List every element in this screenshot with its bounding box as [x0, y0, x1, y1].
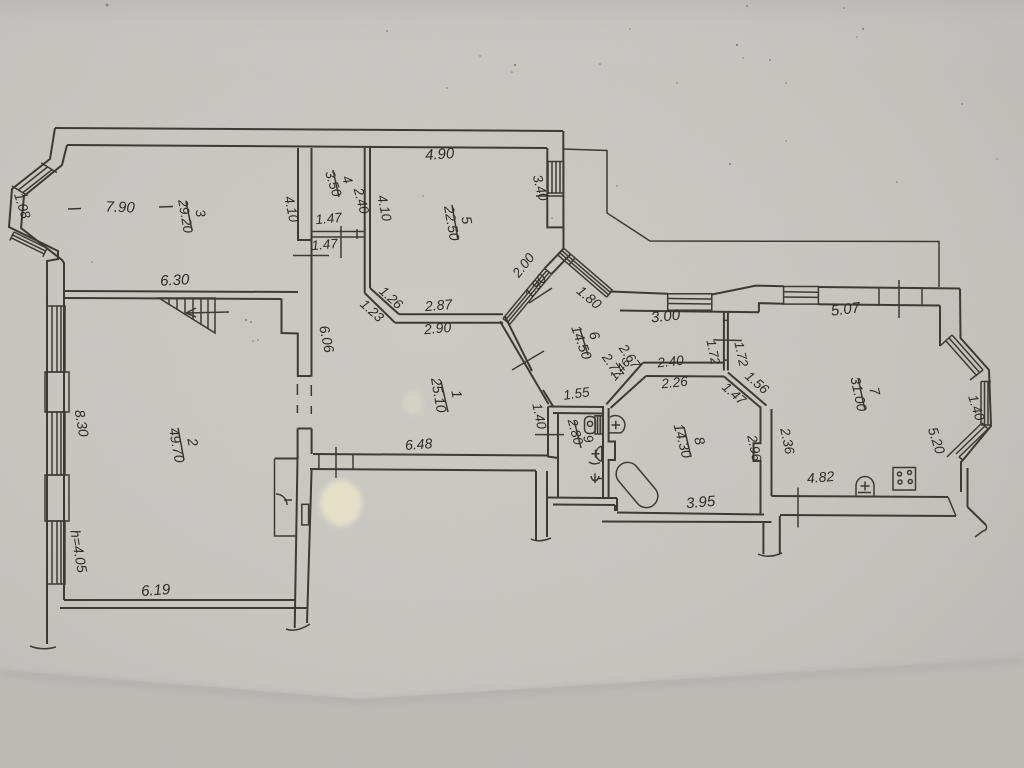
- svg-text:2.26: 2.26: [660, 374, 689, 392]
- svg-text:1.47: 1.47: [311, 236, 339, 253]
- svg-text:4.90: 4.90: [425, 145, 456, 164]
- svg-text:5.07: 5.07: [830, 299, 862, 320]
- svg-text:4.82: 4.82: [806, 468, 835, 486]
- svg-text:6.48: 6.48: [405, 435, 434, 453]
- svg-text:7.90: 7.90: [105, 198, 135, 216]
- svg-text:3.95: 3.95: [685, 493, 716, 513]
- svg-text:6.30: 6.30: [160, 271, 191, 290]
- svg-text:2.40: 2.40: [656, 353, 685, 371]
- svg-text:2.90: 2.90: [422, 319, 452, 337]
- svg-text:6.19: 6.19: [141, 581, 172, 600]
- svg-text:1.47: 1.47: [315, 210, 343, 227]
- svg-text:3.00: 3.00: [650, 306, 681, 326]
- svg-text:2.87: 2.87: [423, 296, 454, 315]
